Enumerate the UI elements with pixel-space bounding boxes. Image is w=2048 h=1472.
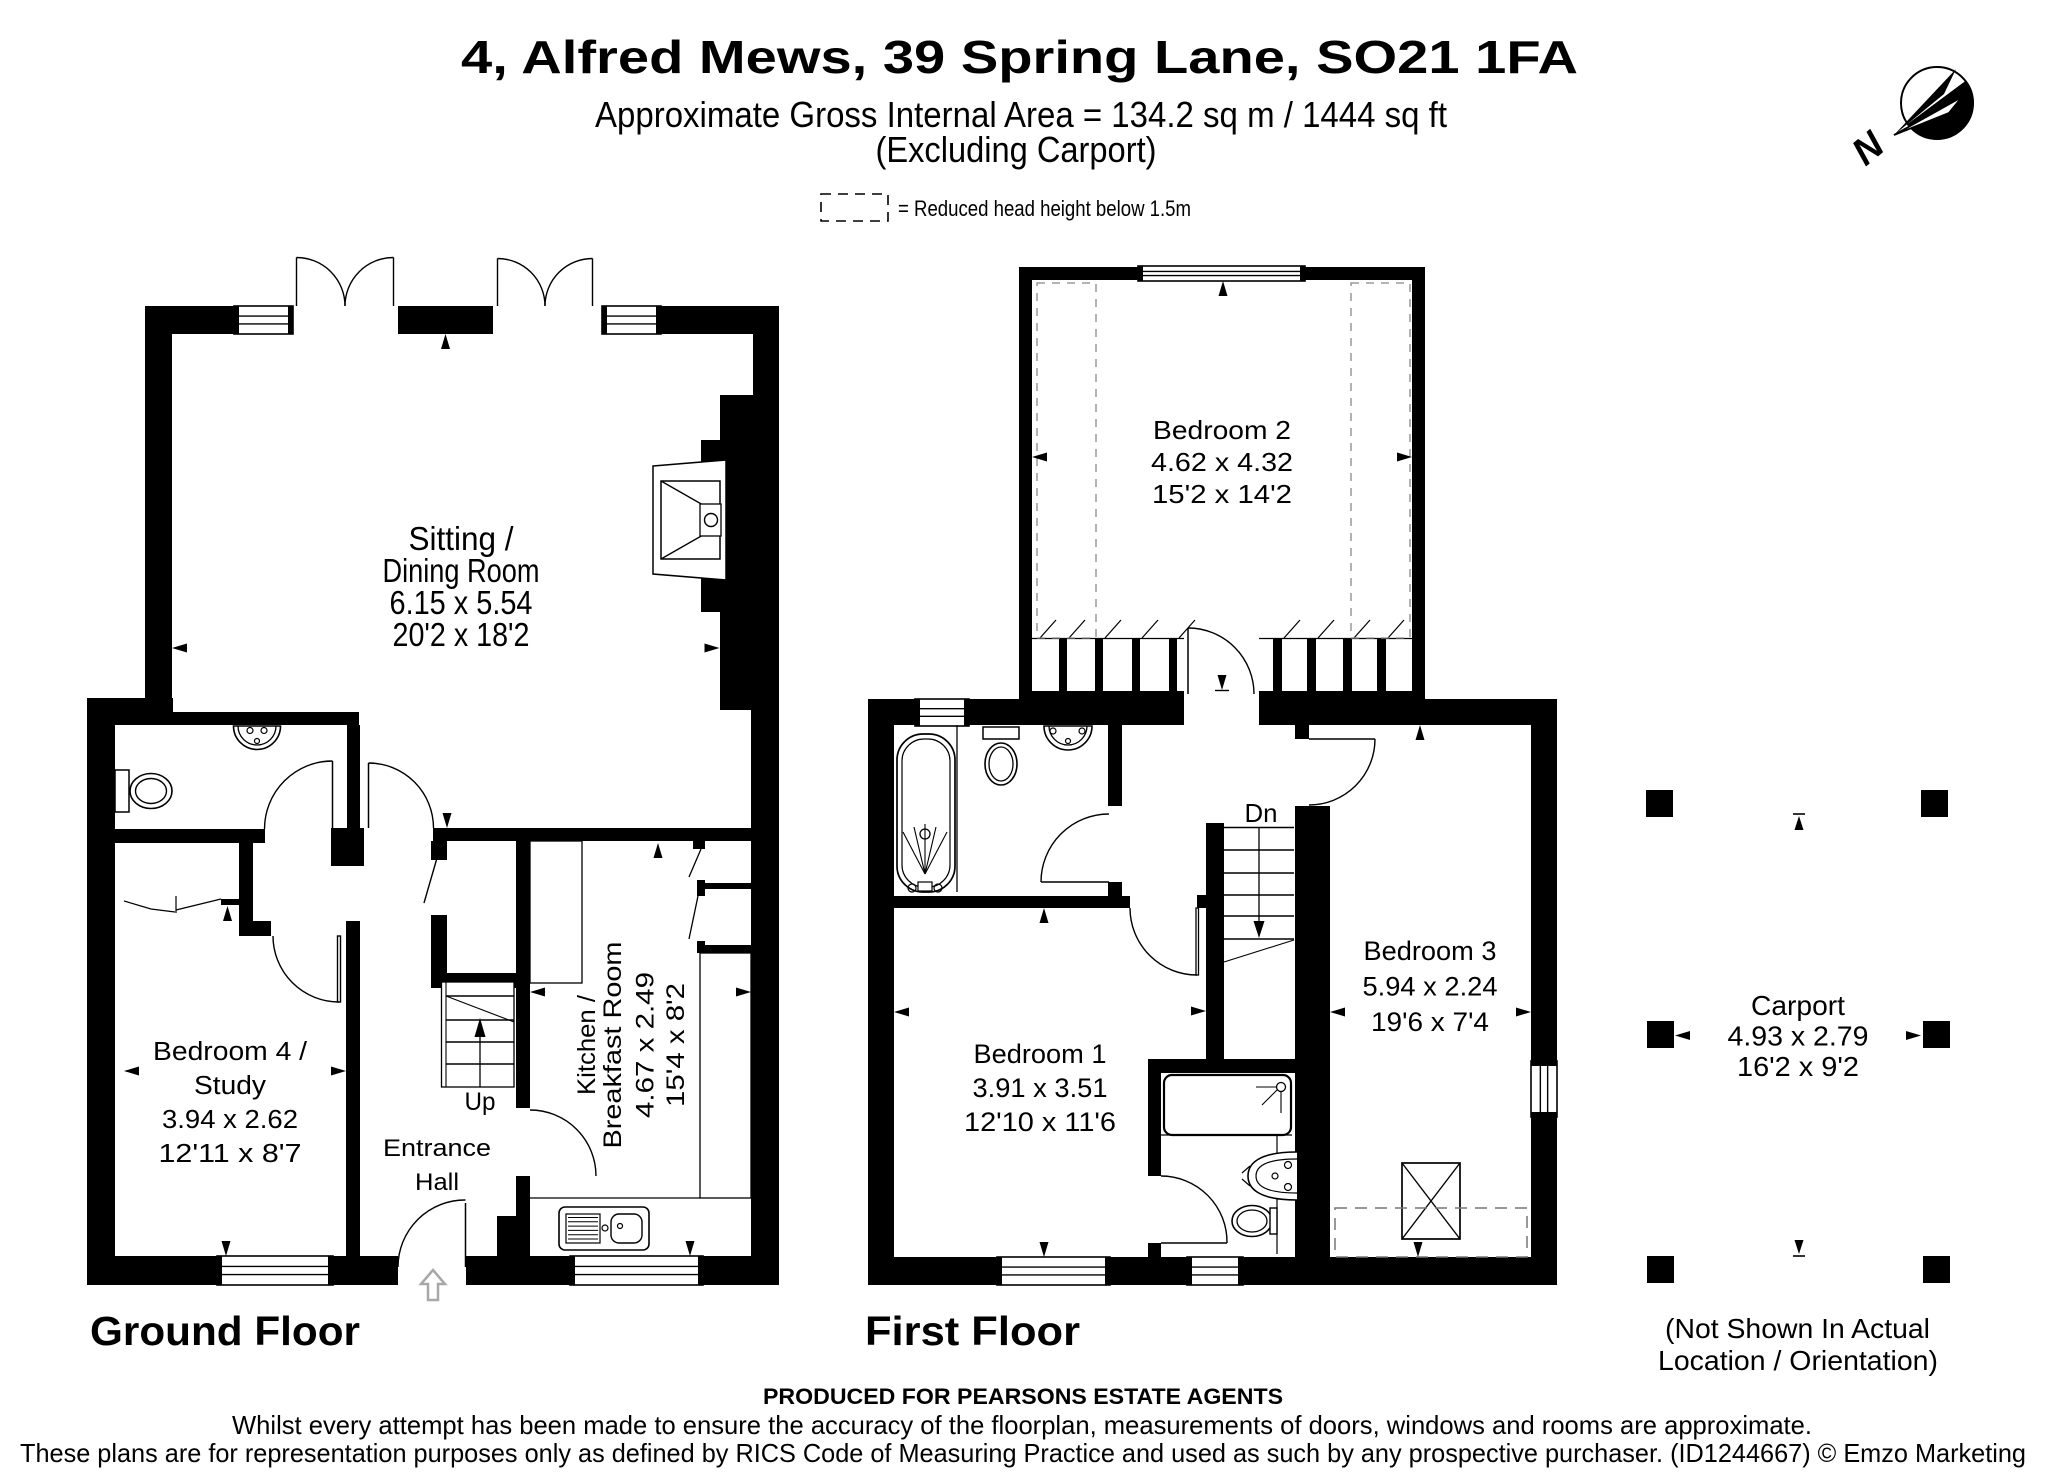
svg-text:5.94 x 2.24: 5.94 x 2.24 xyxy=(1363,972,1498,1002)
svg-text:Bedroom 4 /: Bedroom 4 / xyxy=(153,1038,308,1066)
svg-text:15'4 x 8'2: 15'4 x 8'2 xyxy=(662,983,690,1107)
svg-text:Kitchen /: Kitchen / xyxy=(573,995,601,1095)
svg-text:12'11 x 8'7: 12'11 x 8'7 xyxy=(159,1140,302,1168)
svg-text:12'10 x 11'6: 12'10 x 11'6 xyxy=(964,1107,1116,1137)
svg-text:Ground Floor: Ground Floor xyxy=(90,1308,360,1354)
svg-text:3.94 x 2.62: 3.94 x 2.62 xyxy=(162,1106,298,1134)
svg-text:Dn: Dn xyxy=(1245,798,1278,828)
svg-text:4.62 x 4.32: 4.62 x 4.32 xyxy=(1151,447,1293,477)
svg-text:20'2 x 18'2: 20'2 x 18'2 xyxy=(393,616,530,653)
svg-text:These plans are for representa: These plans are for representation purpo… xyxy=(20,1438,2026,1468)
svg-text:Carport: Carport xyxy=(1751,990,1845,1021)
svg-text:15'2 x 14'2: 15'2 x 14'2 xyxy=(1152,479,1292,509)
svg-text:First Floor: First Floor xyxy=(865,1308,1080,1354)
svg-text:Bedroom 2: Bedroom 2 xyxy=(1153,415,1291,445)
svg-text:Entrance: Entrance xyxy=(383,1135,491,1162)
svg-text:3.91 x 3.51: 3.91 x 3.51 xyxy=(973,1073,1108,1103)
svg-text:4, Alfred Mews, 39 Spring Lane: 4, Alfred Mews, 39 Spring Lane, SO21 1FA xyxy=(461,31,1578,83)
svg-text:Bedroom 3: Bedroom 3 xyxy=(1364,936,1497,966)
svg-text:(Not Shown In Actual: (Not Shown In Actual xyxy=(1665,1313,1930,1344)
svg-text:(Excluding Carport): (Excluding Carport) xyxy=(876,129,1157,170)
svg-text:Up: Up xyxy=(465,1088,496,1116)
svg-text:Whilst every attempt has been: Whilst every attempt has been made to en… xyxy=(232,1410,1812,1440)
svg-text:19'6 x 7'4: 19'6 x 7'4 xyxy=(1371,1007,1489,1037)
svg-text:16'2 x 9'2: 16'2 x 9'2 xyxy=(1737,1051,1859,1082)
svg-text:4.93 x 2.79: 4.93 x 2.79 xyxy=(1728,1021,1869,1052)
svg-text:4.67 x 2.49: 4.67 x 2.49 xyxy=(632,972,660,1118)
svg-text:Location / Orientation): Location / Orientation) xyxy=(1658,1345,1938,1376)
svg-text:PRODUCED FOR PEARSONS ESTATE A: PRODUCED FOR PEARSONS ESTATE AGENTS xyxy=(763,1384,1283,1409)
svg-text:Study: Study xyxy=(194,1072,266,1100)
svg-text:Breakfast Room: Breakfast Room xyxy=(599,942,627,1149)
svg-text:Bedroom 1: Bedroom 1 xyxy=(974,1039,1107,1069)
svg-text:Hall: Hall xyxy=(415,1169,459,1196)
svg-text:= Reduced head height below 1.: = Reduced head height below 1.5m xyxy=(898,196,1191,221)
